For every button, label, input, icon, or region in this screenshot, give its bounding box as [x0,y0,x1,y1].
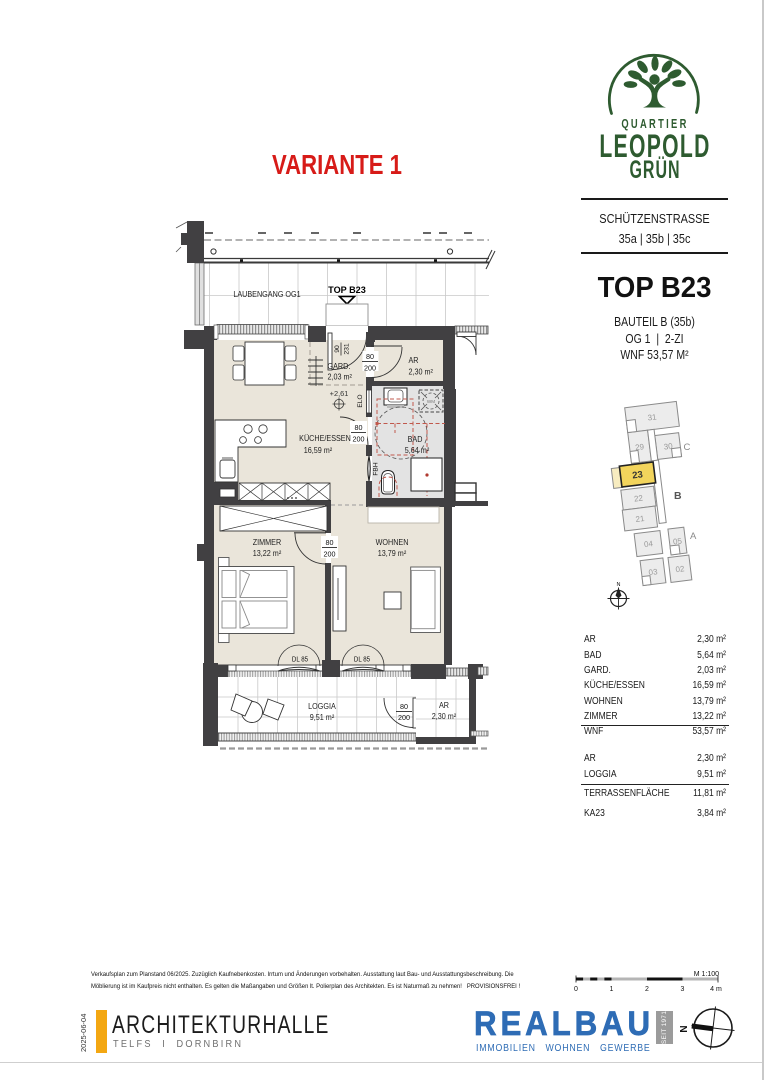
svg-text:0: 0 [574,986,578,993]
svg-text:WOHNEN: WOHNEN [376,538,409,548]
svg-text:16,59 m²: 16,59 m² [304,446,333,456]
svg-text:04: 04 [644,539,654,549]
svg-text:4 m: 4 m [710,986,722,993]
svg-text:DL 85: DL 85 [354,656,370,663]
svg-text:200: 200 [398,713,410,722]
svg-text:N: N [617,582,621,588]
svg-text:13,79 m²: 13,79 m² [378,549,407,559]
svg-text:BAD: BAD [408,435,423,445]
svg-text:80: 80 [366,352,374,361]
svg-text:02: 02 [675,564,685,574]
svg-text:AR: AR [409,356,419,366]
svg-text:90: 90 [334,345,341,353]
svg-text:DL 85: DL 85 [292,656,308,663]
svg-text:+2,61: +2,61 [330,389,349,398]
svg-text:ZIMMER: ZIMMER [253,538,282,548]
svg-text:200: 200 [324,550,336,559]
svg-text:M 1:100: M 1:100 [694,971,719,978]
svg-text:TOP B23: TOP B23 [328,285,366,295]
svg-text:22: 22 [633,493,643,503]
svg-text:3: 3 [681,986,685,993]
svg-text:KÜCHE/ESSEN: KÜCHE/ESSEN [299,434,351,444]
svg-text:9,51 m²: 9,51 m² [310,713,335,723]
svg-text:31: 31 [647,412,657,422]
svg-text:LOGGIA: LOGGIA [308,702,336,712]
svg-text:200: 200 [364,364,376,373]
svg-text:80: 80 [355,423,363,432]
svg-text:B: B [674,490,682,502]
svg-text:231: 231 [344,343,351,355]
svg-text:2: 2 [645,986,649,993]
svg-text:C: C [684,442,691,453]
svg-text:ELO: ELO [357,394,364,407]
svg-text:LAUBENGANG OG1: LAUBENGANG OG1 [233,290,300,300]
svg-text:AR: AR [439,701,449,711]
svg-text:2,03 m²: 2,03 m² [328,372,353,382]
svg-text:5,64 m²: 5,64 m² [405,446,430,456]
svg-text:2,30 m²: 2,30 m² [409,367,434,377]
svg-text:1: 1 [610,986,614,993]
svg-text:80: 80 [400,702,408,711]
svg-text:2,30 m²: 2,30 m² [432,712,457,722]
svg-text:A: A [690,531,697,542]
svg-text:GARD.: GARD. [328,362,351,372]
svg-text:13,22 m²: 13,22 m² [253,549,282,559]
svg-text:FBH: FBH [373,462,380,475]
svg-text:WM: WM [427,399,435,404]
svg-text:21: 21 [635,514,645,524]
svg-text:80: 80 [326,538,334,547]
svg-text:23: 23 [632,469,644,481]
svg-text:200: 200 [353,435,365,444]
